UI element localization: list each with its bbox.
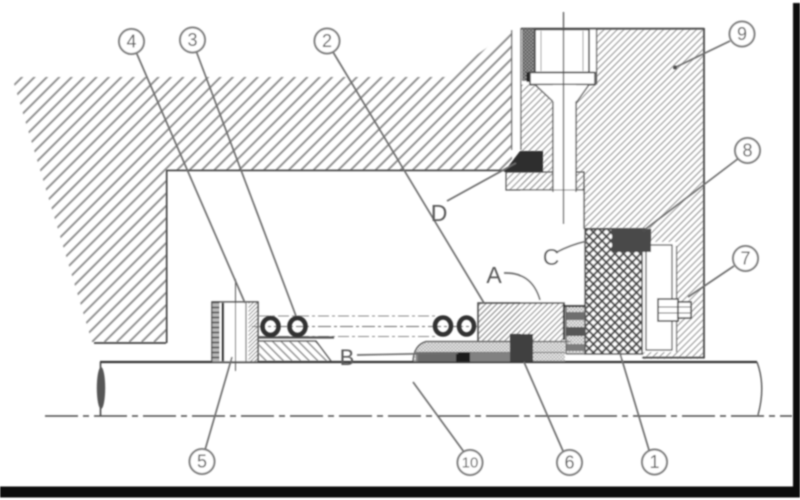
svg-text:1: 1 [649,452,659,472]
svg-text:5: 5 [197,452,207,472]
svg-text:9: 9 [737,24,747,44]
svg-text:2: 2 [322,31,332,51]
svg-text:C: C [543,244,560,270]
svg-text:8: 8 [742,141,752,161]
svg-text:6: 6 [564,453,574,473]
svg-text:B: B [340,345,355,370]
svg-text:7: 7 [740,249,750,269]
svg-text:A: A [486,262,502,288]
svg-text:D: D [431,200,448,226]
svg-text:10: 10 [462,455,479,472]
svg-text:4: 4 [126,32,136,52]
svg-text:3: 3 [187,30,197,50]
